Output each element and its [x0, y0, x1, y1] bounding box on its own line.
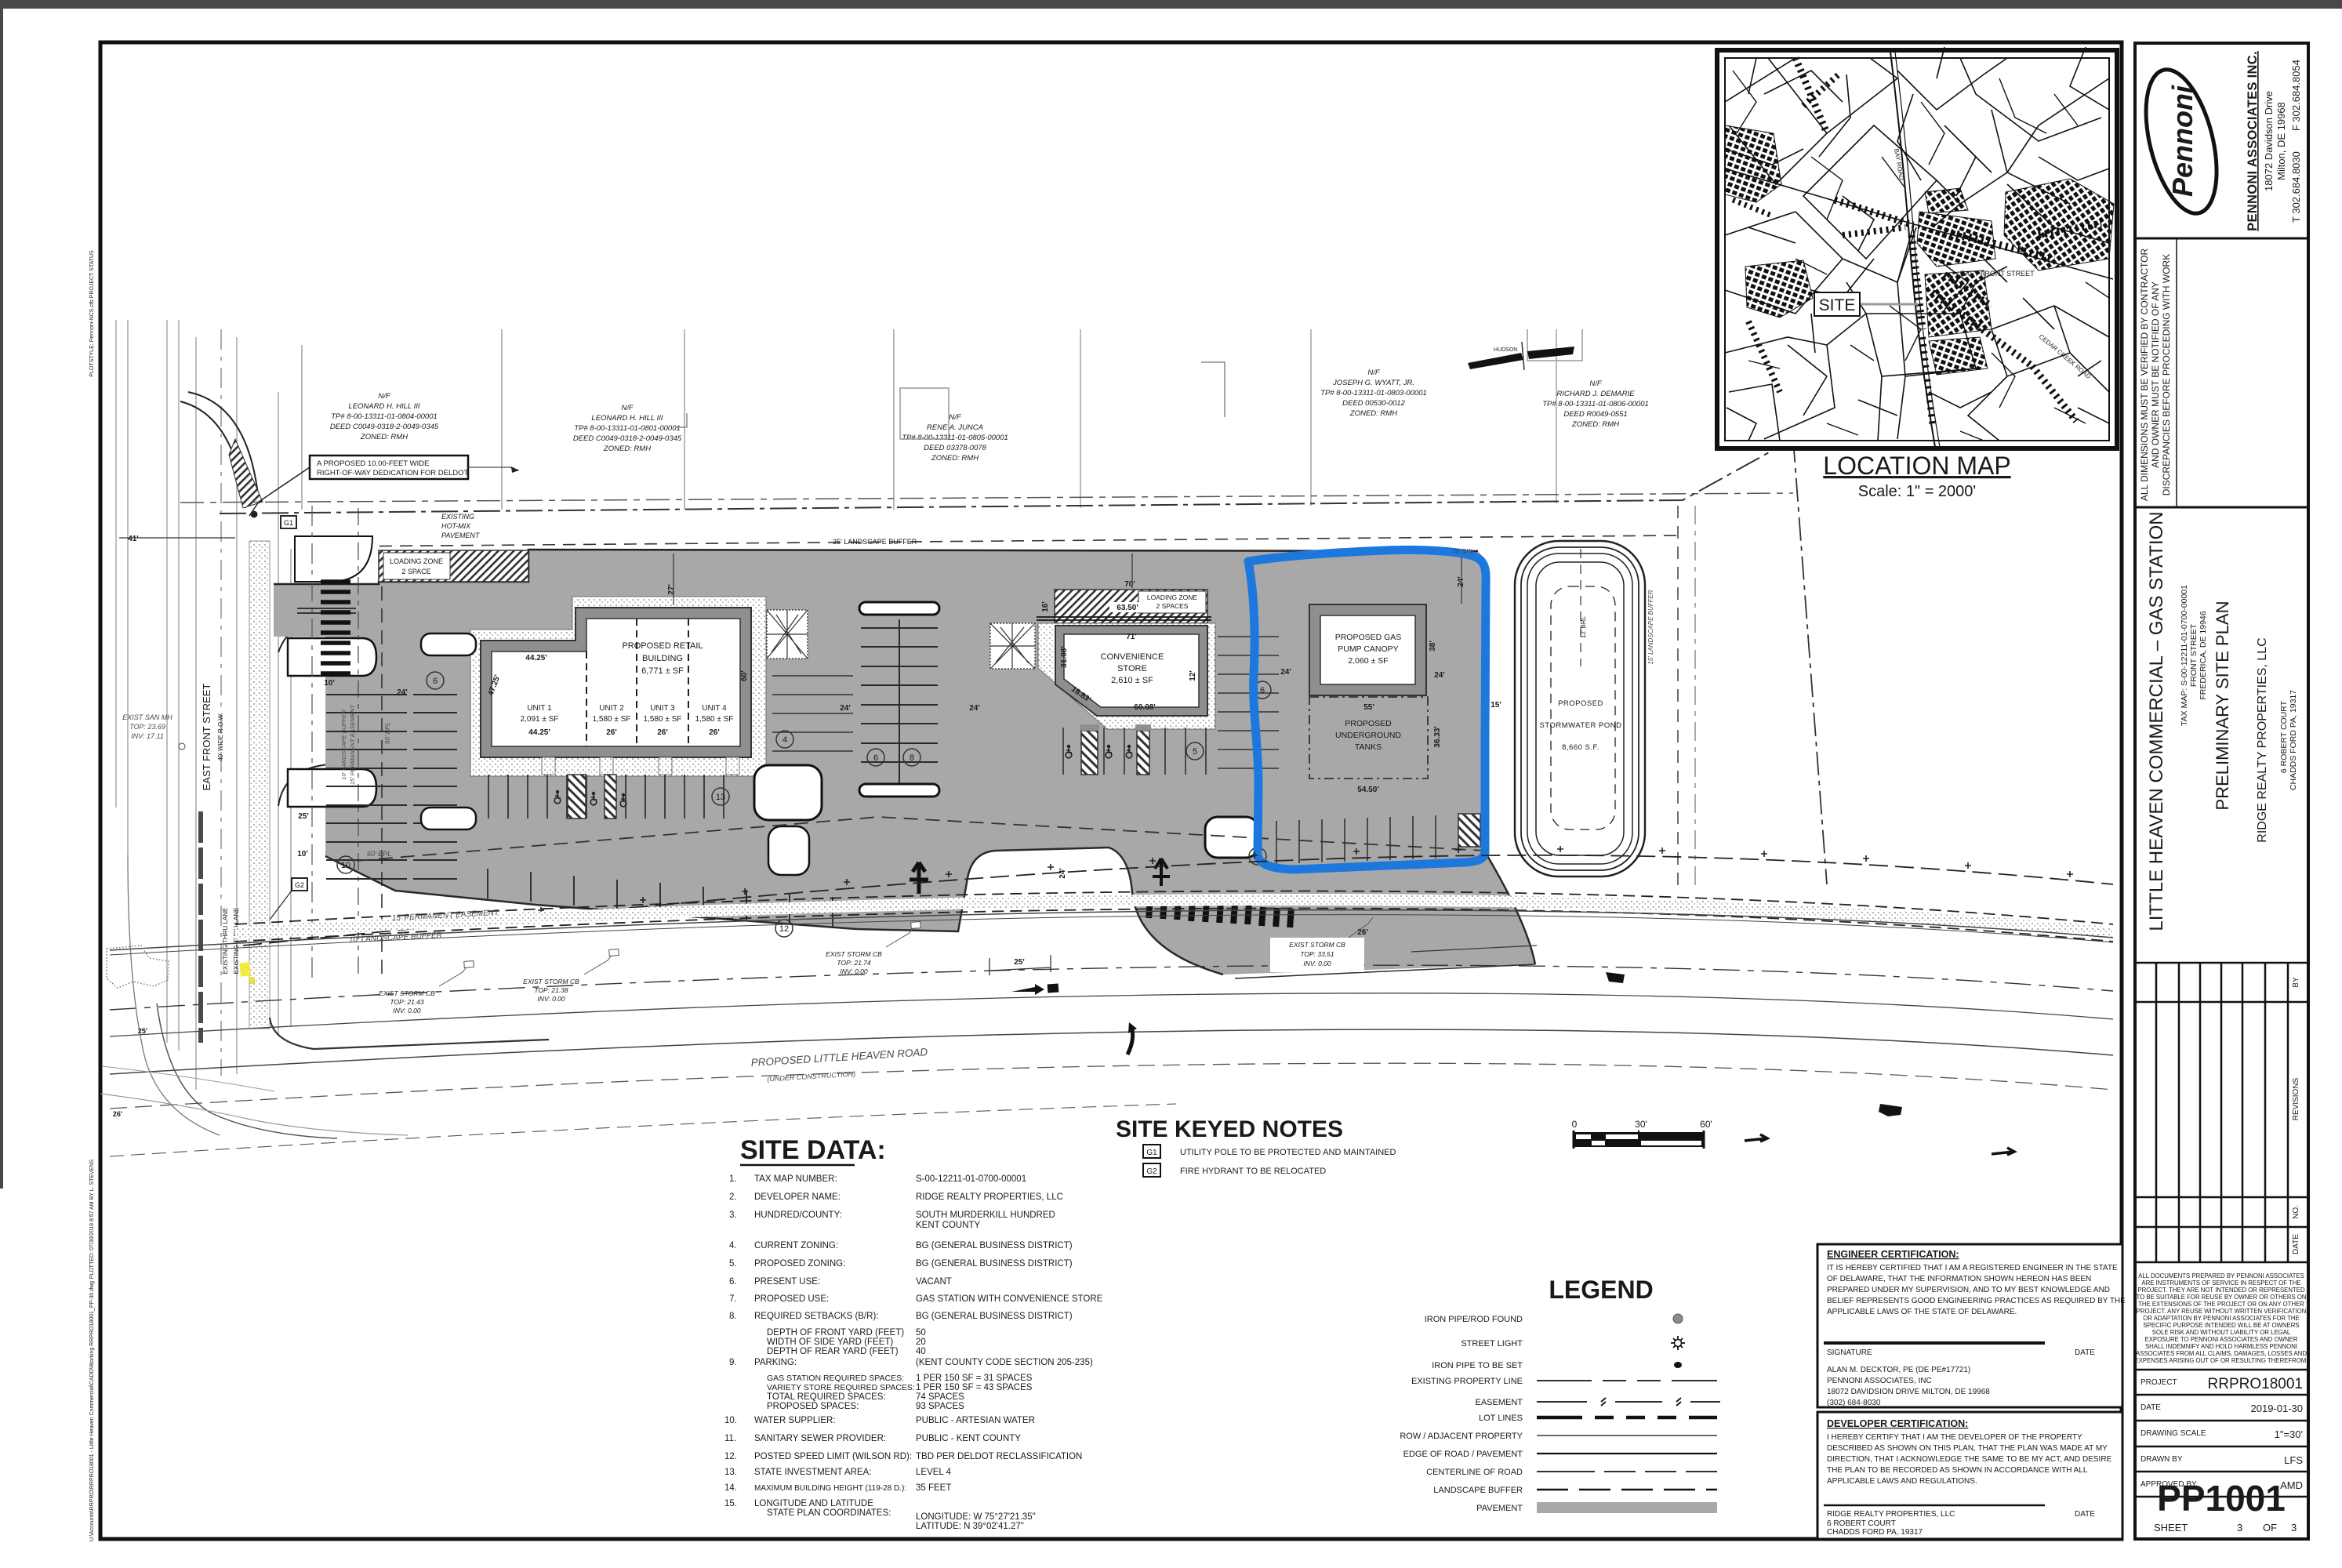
svg-text:EDGE OF ROAD / PAVEMENT: EDGE OF ROAD / PAVEMENT	[1403, 1450, 1523, 1459]
svg-text:UNIT 2: UNIT 2	[599, 704, 624, 713]
svg-text:APPLICABLE LAWS OF THE STATE O: APPLICABLE LAWS OF THE STATE OF DELAWARE…	[1827, 1308, 2017, 1316]
svg-text:SPECIFIC PURPOSE INTENDED WILL: SPECIFIC PURPOSE INTENDED WILL BE AT OWN…	[2143, 1322, 2299, 1329]
svg-text:2,060 ± SF: 2,060 ± SF	[1348, 656, 1388, 666]
svg-text:DIRECTION, THAT I ACKNOWLEDGE: DIRECTION, THAT I ACKNOWLEDGE THE SAME T…	[1827, 1455, 2112, 1464]
svg-text:FRONT STREET: FRONT STREET	[2189, 623, 2199, 687]
svg-text:25': 25'	[138, 1027, 147, 1035]
svg-text:SITE: SITE	[1819, 296, 1856, 314]
svg-text:RENE A. JUNCA: RENE A. JUNCA	[927, 423, 983, 432]
svg-text:DESCRIBED AS SHOWN ON THIS PLA: DESCRIBED AS SHOWN ON THIS PLAN, THAT TH…	[1827, 1444, 2108, 1453]
svg-text:PARKING:: PARKING:	[754, 1358, 797, 1367]
svg-text:36.33': 36.33'	[1433, 726, 1442, 747]
svg-text:LEONARD H. HILL III: LEONARD H. HILL III	[591, 414, 663, 423]
svg-text:DEED 00530-0012: DEED 00530-0012	[1342, 399, 1405, 408]
svg-text:EXIST STORM CB: EXIST STORM CB	[826, 950, 882, 958]
svg-text:20: 20	[916, 1338, 926, 1347]
svg-text:DEVELOPER NAME:: DEVELOPER NAME:	[754, 1192, 841, 1202]
svg-text:DATE: DATE	[2140, 1403, 2161, 1412]
svg-text:IRON PIPE TO BE SET: IRON PIPE TO BE SET	[1432, 1361, 1523, 1370]
svg-text:LOADING ZONE: LOADING ZONE	[390, 557, 443, 565]
svg-text:I HEREBY CERTIFY THAT I AM THE: I HEREBY CERTIFY THAT I AM THE DEVELOPER…	[1827, 1433, 2082, 1442]
svg-text:PUBLIC - KENT COUNTY: PUBLIC - KENT COUNTY	[916, 1434, 1021, 1443]
svg-text:3.: 3.	[729, 1210, 737, 1220]
svg-text:DISCREPANCIES BEFORE PROCEEDIN: DISCREPANCIES BEFORE PROCEEDING WITH WOR…	[2161, 254, 2172, 495]
svg-text:CENTERLINE OF ROAD: CENTERLINE OF ROAD	[1426, 1468, 1523, 1477]
svg-text:G1: G1	[284, 519, 293, 527]
svg-text:EXIST STORM CB: EXIST STORM CB	[1289, 941, 1345, 949]
svg-text:1.: 1.	[729, 1174, 737, 1184]
svg-text:KENT COUNTY: KENT COUNTY	[916, 1221, 981, 1230]
svg-text:TANKS: TANKS	[1355, 742, 1382, 752]
svg-text:ZONED: RMH: ZONED: RMH	[931, 454, 979, 463]
svg-text:50: 50	[916, 1328, 926, 1338]
svg-text:N/F: N/F	[1367, 368, 1381, 377]
svg-text:SANITARY SEWER PROVIDER:: SANITARY SEWER PROVIDER:	[754, 1434, 886, 1443]
svg-text:PROJECT: PROJECT	[2140, 1378, 2177, 1387]
svg-text:SHALL INDEMNIFY AND HOLD HARML: SHALL INDEMNIFY AND HOLD HARMLESS PENNON…	[2145, 1343, 2297, 1350]
svg-text:TP# 8-00-13311-01-0804-00001: TP# 8-00-13311-01-0804-00001	[331, 412, 438, 421]
svg-text:IT IS HEREBY CERTIFIED THAT I: IT IS HEREBY CERTIFIED THAT I AM A REGIS…	[1827, 1264, 2118, 1272]
svg-text:6: 6	[1260, 686, 1265, 695]
svg-text:7.: 7.	[729, 1294, 737, 1304]
svg-text:BY: BY	[2292, 977, 2300, 988]
svg-text:ALL DIMENSIONS MUST BE VERIFIE: ALL DIMENSIONS MUST BE VERIFIED BY CONTR…	[2139, 249, 2150, 502]
svg-text:EXIST STORM CB: EXIST STORM CB	[379, 989, 435, 997]
svg-text:LEVEL 4: LEVEL 4	[916, 1468, 952, 1477]
svg-text:RICHARD J. DEMARIE: RICHARD J. DEMARIE	[1556, 390, 1635, 398]
svg-text:44.25': 44.25'	[528, 728, 550, 737]
svg-text:30' BPL: 30' BPL	[1452, 548, 1474, 555]
svg-text:DEED 03378-0078: DEED 03378-0078	[924, 444, 986, 452]
svg-text:SHEET: SHEET	[2154, 1522, 2188, 1534]
svg-text:DATE: DATE	[2292, 1234, 2300, 1254]
svg-text:CURRENT ZONING:: CURRENT ZONING:	[754, 1241, 838, 1250]
svg-text:SIGNATURE: SIGNATURE	[1827, 1348, 1872, 1357]
svg-text:S-00-12211-01-0700-00001: S-00-12211-01-0700-00001	[916, 1174, 1026, 1184]
svg-text:LOT LINES: LOT LINES	[1479, 1414, 1523, 1423]
svg-text:GAS STATION WITH CONVENIENCE S: GAS STATION WITH CONVENIENCE STORE	[916, 1294, 1103, 1304]
svg-text:LOADING ZONE: LOADING ZONE	[1147, 593, 1198, 601]
svg-text:HUNDRED/COUNTY:: HUNDRED/COUNTY:	[754, 1210, 842, 1220]
svg-text:FREDERICA, DE 19946: FREDERICA, DE 19946	[2199, 611, 2208, 699]
svg-text:16': 16'	[1041, 601, 1050, 612]
svg-text:N/F: N/F	[621, 404, 634, 412]
svg-text:10': 10'	[324, 679, 335, 688]
svg-text:T 302.684.8030 F 302.684.80: T 302.684.8030 F 302.684.8054	[2290, 60, 2302, 223]
svg-text:AND OWNER MUST BE NOTIFIED OF: AND OWNER MUST BE NOTIFIED OF ANY	[2150, 281, 2161, 468]
svg-text:ASSOCIATES FROM ALL CLAIMS, DA: ASSOCIATES FROM ALL CLAIMS, DAMAGES, LOS…	[2136, 1350, 2307, 1357]
svg-text:2.: 2.	[729, 1192, 737, 1202]
svg-text:Milton, DE 19968: Milton, DE 19968	[2275, 102, 2287, 180]
svg-text:N/F: N/F	[1589, 379, 1603, 388]
svg-text:WIDTH OF SIDE YARD (FEET): WIDTH OF SIDE YARD (FEET)	[767, 1338, 893, 1347]
svg-text:PRELIMINARY SITE PLAN: PRELIMINARY SITE PLAN	[2213, 601, 2232, 811]
svg-text:POSTED SPEED LIMIT (WILSON RD): POSTED SPEED LIMIT (WILSON RD):	[754, 1452, 912, 1461]
svg-text:INV: 0.00: INV: 0.00	[1303, 960, 1331, 967]
svg-text:INV: 0.00: INV: 0.00	[537, 995, 565, 1003]
svg-text:5: 5	[1193, 747, 1197, 757]
svg-text:15': 15'	[1491, 701, 1501, 710]
svg-text:UNDERGROUND: UNDERGROUND	[1335, 731, 1401, 740]
svg-text:PROPOSED: PROPOSED	[1558, 699, 1603, 708]
svg-text:26': 26'	[1357, 928, 1368, 937]
svg-text:RIDGE REALTY PROPERTIES, LLC: RIDGE REALTY PROPERTIES, LLC	[2256, 637, 2269, 842]
svg-text:PAVEMENT: PAVEMENT	[441, 532, 481, 539]
svg-text:PROPOSED: PROPOSED	[1345, 719, 1392, 728]
svg-text:CHADDS FORD PA, 19317: CHADDS FORD PA, 19317	[2289, 690, 2298, 790]
svg-text:35' LANDSCAPE BUFFER: 35' LANDSCAPE BUFFER	[833, 538, 917, 546]
svg-text:ZONED: RMH: ZONED: RMH	[1349, 409, 1397, 418]
svg-text:REQUIRED SETBACKS (B/R):: REQUIRED SETBACKS (B/R):	[754, 1312, 878, 1321]
svg-text:RRPRO18001: RRPRO18001	[2208, 1376, 2303, 1392]
svg-text:LONGITUDE: W 75°27'21.35": LONGITUDE: W 75°27'21.35"	[916, 1512, 1036, 1522]
svg-text:PAVEMENT: PAVEMENT	[1476, 1504, 1523, 1513]
svg-text:60.08': 60.08'	[1134, 703, 1155, 712]
svg-text:UTILITY POLE TO BE PROTECTED A: UTILITY POLE TO BE PROTECTED AND MAINTAI…	[1180, 1148, 1396, 1157]
svg-text:40: 40	[916, 1347, 926, 1356]
svg-text:STREET LIGHT: STREET LIGHT	[1461, 1339, 1523, 1348]
svg-text:PUMP CANOPY: PUMP CANOPY	[1338, 644, 1398, 654]
svg-text:THE EXTENSIONS OF THE PROJECT: THE EXTENSIONS OF THE PROJECT OR ON ANY …	[2138, 1301, 2304, 1308]
svg-text:ENGINEER CERTIFICATION:: ENGINEER CERTIFICATION:	[1827, 1249, 1959, 1260]
svg-text:1,580 ± SF: 1,580 ± SF	[695, 715, 734, 724]
svg-text:VARIETY STORE REQUIRED SPACES:: VARIETY STORE REQUIRED SPACES:	[767, 1383, 915, 1392]
svg-text:TBD PER DELDOT RECLASSIFICATIO: TBD PER DELDOT RECLASSIFICATION	[916, 1452, 1082, 1461]
svg-text:CONVENIENCE: CONVENIENCE	[1101, 652, 1164, 662]
svg-text:DEVELOPER CERTIFICATION:: DEVELOPER CERTIFICATION:	[1827, 1418, 1968, 1429]
svg-text:EXISTING THRU LANE: EXISTING THRU LANE	[222, 908, 229, 975]
svg-text:71': 71'	[1126, 633, 1137, 641]
svg-text:18072 DAVIDSION DRIVE MILTON,: 18072 DAVIDSION DRIVE MILTON, DE 19968	[1827, 1388, 1990, 1396]
svg-text:60' BPL: 60' BPL	[384, 722, 391, 744]
svg-text:LEONARD H. HILL III: LEONARD H. HILL III	[348, 402, 420, 411]
svg-text:6.: 6.	[729, 1277, 737, 1287]
svg-text:ZONED: RMH: ZONED: RMH	[603, 445, 651, 453]
svg-text:LFS: LFS	[2284, 1454, 2303, 1466]
svg-text:13: 13	[716, 793, 725, 802]
svg-text:LATITUDE: N 39°02'41.27": LATITUDE: N 39°02'41.27"	[916, 1522, 1024, 1531]
svg-text:54.50': 54.50'	[1357, 786, 1378, 794]
svg-text:EASEMENT: EASEMENT	[1475, 1398, 1523, 1407]
svg-text:RIDGE REALTY PROPERTIES, LLC: RIDGE REALTY PROPERTIES, LLC	[1827, 1510, 1955, 1519]
svg-text:44.25': 44.25'	[525, 654, 546, 662]
svg-text:SITE DATA:: SITE DATA:	[740, 1135, 886, 1165]
svg-text:EXISTING: EXISTING	[441, 513, 474, 521]
svg-text:70': 70'	[1124, 580, 1135, 589]
svg-text:CHADDS FORD PA, 19317: CHADDS FORD PA, 19317	[1827, 1528, 1923, 1537]
svg-text:74 SPACES: 74 SPACES	[916, 1392, 964, 1402]
svg-text:8: 8	[910, 753, 914, 763]
svg-text:UNIT 3: UNIT 3	[650, 704, 675, 713]
svg-text:STORE: STORE	[1117, 664, 1147, 673]
svg-text:Pennoni: Pennoni	[2166, 85, 2199, 197]
svg-text:RIDGE REALTY PROPERTIES, LLC: RIDGE REALTY PROPERTIES, LLC	[916, 1192, 1063, 1202]
svg-text:LONGITUDE AND LATITUDE: LONGITUDE AND LATITUDE	[754, 1499, 873, 1508]
svg-text:IRON PIPE/ROD FOUND: IRON PIPE/ROD FOUND	[1425, 1315, 1523, 1324]
svg-text:TP# 8-00-13311-01-0805-00001: TP# 8-00-13311-01-0805-00001	[902, 434, 1008, 442]
svg-text:10' LANDSCAPE BUFFER: 10' LANDSCAPE BUFFER	[340, 710, 347, 780]
svg-text:ARE INSTRUMENTS OF SERVICE IN: ARE INSTRUMENTS OF SERVICE IN RESPECT OF…	[2141, 1279, 2300, 1287]
svg-text:4: 4	[782, 735, 787, 745]
svg-text:26': 26'	[657, 728, 668, 737]
svg-text:15' LANDSCAPE BUFFER: 15' LANDSCAPE BUFFER	[1647, 590, 1654, 665]
svg-text:8.: 8.	[729, 1312, 737, 1321]
svg-text:EXIST STORM CB: EXIST STORM CB	[523, 978, 579, 985]
svg-text:THE PLAN TO BE RECORDED AS SHO: THE PLAN TO BE RECORDED AS SHOWN IN ACCO…	[1827, 1466, 2088, 1475]
svg-text:2 SPACES: 2 SPACES	[1156, 602, 1189, 610]
svg-text:EXIST SAN MH: EXIST SAN MH	[122, 713, 172, 721]
svg-text:OF: OF	[2263, 1522, 2277, 1534]
svg-text:OR ADAPTATION BY PENNONI ASSOC: OR ADAPTATION BY PENNONI ASSOCIATES FOR …	[2143, 1315, 2299, 1322]
svg-text:12: 12	[779, 924, 789, 934]
svg-text:FIRE HYDRANT TO BE RELOCATED: FIRE HYDRANT TO BE RELOCATED	[1180, 1167, 1326, 1176]
svg-text:SOLE RISK AND WITHOUT LIABILIT: SOLE RISK AND WITHOUT LIABILITY OR LEGAL	[2152, 1329, 2291, 1336]
svg-text:PRESENT USE:: PRESENT USE:	[754, 1277, 820, 1287]
svg-text:24': 24'	[1434, 671, 1445, 680]
svg-text:26': 26'	[113, 1110, 122, 1118]
svg-text:(KENT COUNTY CODE SECTION 205-: (KENT COUNTY CODE SECTION 205-235)	[916, 1358, 1093, 1367]
svg-text:1"=30': 1"=30'	[2275, 1428, 2303, 1440]
svg-text:25': 25'	[1014, 958, 1025, 967]
svg-text:INV: 17.11: INV: 17.11	[131, 732, 164, 740]
svg-text:PROPOSED ZONING:: PROPOSED ZONING:	[754, 1259, 845, 1269]
svg-text:1 PER 150 SF = 43 SPACES: 1 PER 150 SF = 43 SPACES	[916, 1383, 1033, 1392]
svg-text:40' WIDE R.O.W.: 40' WIDE R.O.W.	[217, 713, 224, 761]
svg-text:PENNONI ASSOCIATES INC.: PENNONI ASSOCIATES INC.	[2246, 51, 2260, 231]
svg-text:INV: 0.00: INV: 0.00	[393, 1007, 421, 1014]
svg-text:PREPARED UNDER MY SUPERVISION,: PREPARED UNDER MY SUPERVISION, AND TO MY…	[1827, 1286, 2110, 1294]
svg-text:DEED C0049-0318-2-0049-0345: DEED C0049-0318-2-0049-0345	[573, 434, 682, 443]
svg-text:LITTLE HEAVEN COMMERCIAL – GAS: LITTLE HEAVEN COMMERCIAL – GAS STATION	[2146, 511, 2167, 931]
svg-text:24': 24'	[1280, 668, 1291, 677]
svg-text:12': 12'	[1189, 670, 1197, 681]
svg-text:LANDSCAPE BUFFER: LANDSCAPE BUFFER	[1433, 1486, 1523, 1495]
svg-text:G2: G2	[1146, 1167, 1157, 1176]
svg-text:BUILDING: BUILDING	[642, 654, 683, 663]
svg-text:ZONED: RMH: ZONED: RMH	[360, 433, 408, 441]
svg-text:14.: 14.	[724, 1483, 737, 1493]
svg-text:60': 60'	[740, 670, 749, 681]
svg-text:0: 0	[1572, 1119, 1578, 1130]
svg-text:DATE: DATE	[2075, 1510, 2095, 1519]
svg-text:JOSEPH G. WYATT, JR.: JOSEPH G. WYATT, JR.	[1332, 379, 1414, 387]
svg-text:HUDSON: HUDSON	[1494, 347, 1517, 353]
svg-text:TOTAL REQUIRED SPACES:: TOTAL REQUIRED SPACES:	[767, 1392, 886, 1402]
svg-text:HOT-MIX: HOT-MIX	[441, 522, 471, 530]
svg-text:TOP: 23.69: TOP: 23.69	[129, 723, 165, 731]
svg-text:93 SPACES: 93 SPACES	[916, 1402, 964, 1411]
svg-text:BELIEF REPRESENTS GOOD ENGINEE: BELIEF REPRESENTS GOOD ENGINEERING PRACT…	[1827, 1297, 2126, 1305]
svg-text:DEED C0049-0318-2-0049-0345: DEED C0049-0318-2-0049-0345	[330, 423, 439, 431]
svg-text:PROJECT. THEY ARE NOT INTENDE: PROJECT. THEY ARE NOT INTENDED OR REPRES…	[2137, 1287, 2305, 1294]
svg-text:ZONED: RMH: ZONED: RMH	[1571, 420, 1619, 429]
svg-text:1 PER 150 SF = 31 SPACES: 1 PER 150 SF = 31 SPACES	[916, 1374, 1033, 1383]
svg-text:60': 60'	[1700, 1119, 1712, 1130]
svg-text:EXISTING PROPERTY LINE: EXISTING PROPERTY LINE	[1411, 1377, 1523, 1386]
svg-text:ROW / ADJACENT PROPERTY: ROW / ADJACENT PROPERTY	[1400, 1432, 1523, 1441]
svg-text:DRAWN BY: DRAWN BY	[2140, 1455, 2183, 1464]
svg-text:TP# 8-00-13311-01-0801-00001: TP# 8-00-13311-01-0801-00001	[574, 424, 681, 433]
svg-text:26': 26'	[606, 728, 617, 737]
svg-text:5.: 5.	[729, 1259, 737, 1269]
svg-text:U:\Accounts\RRPRO\RRPRO18001 -: U:\Accounts\RRPRO\RRPRO18001 - Little He…	[89, 1281, 95, 1541]
svg-text:PP1001: PP1001	[2157, 1478, 2286, 1519]
svg-text:NO.: NO.	[2292, 1205, 2300, 1219]
svg-text:A PROPOSED 10.00-FEET WIDE: A PROPOSED 10.00-FEET WIDE	[317, 459, 429, 468]
svg-text:10: 10	[341, 861, 350, 870]
svg-text:WATER SUPPLIER:: WATER SUPPLIER:	[754, 1416, 836, 1425]
svg-text:PROPOSED GAS: PROPOSED GAS	[1335, 633, 1402, 642]
svg-text:STATE INVESTMENT AREA:: STATE INVESTMENT AREA:	[754, 1468, 872, 1477]
svg-text:(302) 684-8030: (302) 684-8030	[1827, 1399, 1881, 1407]
svg-text:6,771 ± SF: 6,771 ± SF	[641, 666, 684, 676]
svg-text:SOUTH MURDERKILL HUNDRED: SOUTH MURDERKILL HUNDRED	[916, 1210, 1055, 1220]
svg-text:2,610 ± SF: 2,610 ± SF	[1111, 676, 1153, 685]
svg-text:BG (GENERAL BUSINESS DISTRICT): BG (GENERAL BUSINESS DISTRICT)	[916, 1241, 1073, 1250]
svg-text:G2: G2	[295, 881, 304, 889]
svg-text:27': 27'	[667, 584, 676, 595]
svg-text:60' BPL: 60' BPL	[367, 850, 391, 858]
svg-text:2019-01-30: 2019-01-30	[2251, 1403, 2304, 1414]
svg-text:DATE: DATE	[2075, 1348, 2095, 1357]
svg-text:UNIT 1: UNIT 1	[527, 704, 552, 713]
svg-text:TOP: 21.43: TOP: 21.43	[390, 998, 424, 1006]
svg-text:10': 10'	[297, 850, 308, 858]
svg-text:6 ROBERT COURT: 6 ROBERT COURT	[2279, 700, 2289, 773]
svg-text:PROJECT. ANY REUSE WITHOUT WR: PROJECT. ANY REUSE WITHOUT WRITTEN VERIF…	[2137, 1308, 2307, 1315]
svg-text:DEPTH OF REAR YARD (FEET): DEPTH OF REAR YARD (FEET)	[767, 1347, 899, 1356]
svg-text:TAX MAP: S-00-12211-01-0700-00: TAX MAP: S-00-12211-01-0700-00001	[2180, 585, 2189, 726]
svg-text:TOP: 21.38: TOP: 21.38	[534, 986, 568, 994]
svg-text:TP# 8-00-13311-01-0803-00001: TP# 8-00-13311-01-0803-00001	[1320, 389, 1427, 397]
svg-text:30': 30'	[1635, 1119, 1647, 1130]
svg-text:ALL DOCUMENTS PREPARED BY PENN: ALL DOCUMENTS PREPARED BY PENNONI ASSOCI…	[2138, 1272, 2304, 1279]
svg-text:18072 Davidson Drive: 18072 Davidson Drive	[2263, 91, 2275, 191]
svg-text:63.50': 63.50'	[1117, 604, 1138, 612]
svg-text:PLOTTED: 07/30/2019 8:57 AM BY: PLOTTED: 07/30/2019 8:57 AM BY L. STEVEN…	[89, 1159, 95, 1279]
svg-text:15.: 15.	[724, 1499, 737, 1508]
svg-text:TAX MAP NUMBER:: TAX MAP NUMBER:	[754, 1174, 837, 1184]
svg-text:11.: 11.	[724, 1434, 736, 1443]
svg-text:3: 3	[2237, 1522, 2242, 1534]
svg-text:PROPOSED SPACES:: PROPOSED SPACES:	[767, 1402, 859, 1411]
svg-text:2,091 ± SF: 2,091 ± SF	[521, 715, 559, 724]
svg-text:6 ROBERT COURT: 6 ROBERT COURT	[1827, 1519, 1896, 1528]
svg-text:DEED R0049-0551: DEED R0049-0551	[1563, 410, 1627, 419]
svg-text:9.: 9.	[729, 1358, 737, 1367]
svg-text:1,580 ± SF: 1,580 ± SF	[644, 715, 682, 724]
svg-text:BG (GENERAL BUSINESS DISTRICT): BG (GENERAL BUSINESS DISTRICT)	[916, 1259, 1073, 1269]
svg-text:Scale: 1" = 2000': Scale: 1" = 2000'	[1858, 483, 1976, 500]
svg-text:DEPTH OF FRONT YARD (FEET): DEPTH OF FRONT YARD (FEET)	[767, 1328, 904, 1338]
svg-text:41': 41'	[128, 535, 139, 543]
svg-text:3: 3	[2291, 1522, 2297, 1534]
svg-text:GAS STATION REQUIRED SPACES:: GAS STATION REQUIRED SPACES:	[767, 1374, 904, 1383]
svg-text:OF DELAWARE, THAT THE INFORMAT: OF DELAWARE, THAT THE INFORMATION SHOWN …	[1827, 1275, 2091, 1283]
svg-text:EXPENSES ARISING OUT OF OR RES: EXPENSES ARISING OUT OF OR RESULTING THE…	[2135, 1357, 2308, 1364]
svg-text:31.08': 31.08'	[1060, 646, 1069, 667]
svg-text:G1: G1	[1146, 1149, 1157, 1157]
svg-text:PLOTSTYLE: Pennoni-NCS.ctb: PLOTSTYLE: Pennoni-NCS.ctb PROJECT STATU…	[89, 250, 95, 377]
svg-text:EAST FRONT STREET: EAST FRONT STREET	[201, 684, 212, 791]
svg-text:APPLICABLE LAWS AND REGULATION: APPLICABLE LAWS AND REGULATIONS.	[1827, 1477, 1977, 1486]
svg-text:25': 25'	[298, 812, 309, 821]
svg-text:N/F: N/F	[378, 392, 391, 401]
svg-text:DRAWING SCALE: DRAWING SCALE	[2140, 1429, 2206, 1438]
svg-text:PENNONI ASSOCIATES, INC: PENNONI ASSOCIATES, INC	[1827, 1377, 1932, 1385]
svg-text:BG (GENERAL BUSINESS DISTRICT): BG (GENERAL BUSINESS DISTRICT)	[916, 1312, 1073, 1321]
svg-text:6: 6	[873, 753, 878, 763]
svg-text:EAST FRONT STREET: EAST FRONT STREET	[1960, 270, 2035, 278]
svg-text:REVISIONS: REVISIONS	[2292, 1077, 2300, 1120]
svg-text:6: 6	[433, 677, 438, 686]
svg-text:TOP: 21.74: TOP: 21.74	[837, 959, 871, 967]
svg-text:4.: 4.	[729, 1241, 737, 1250]
svg-text:35 FEET: 35 FEET	[916, 1483, 951, 1493]
svg-text:13.: 13.	[724, 1468, 737, 1477]
svg-text:10.: 10.	[724, 1416, 737, 1425]
svg-text:TO BE SUITABLE FOR REUSE BY OW: TO BE SUITABLE FOR REUSE BY OWNER OR OTH…	[2136, 1294, 2306, 1301]
svg-text:24': 24'	[397, 688, 408, 697]
svg-text:TOP: 33.51: TOP: 33.51	[1300, 950, 1334, 958]
svg-text:38': 38'	[1429, 641, 1437, 652]
svg-text:2 SPACE: 2 SPACE	[401, 568, 430, 575]
svg-text:PUBLIC - ARTESIAN WATER: PUBLIC - ARTESIAN WATER	[916, 1416, 1035, 1425]
svg-text:SITE KEYED NOTES: SITE KEYED NOTES	[1116, 1116, 1343, 1142]
svg-text:8,660 S.F.: 8,660 S.F.	[1562, 743, 1599, 752]
svg-text:STORMWATER POND: STORMWATER POND	[1540, 721, 1622, 730]
svg-text:24': 24'	[1058, 868, 1067, 879]
svg-text:PROPOSED RETAIL: PROPOSED RETAIL	[622, 641, 703, 651]
svg-text:26': 26'	[709, 728, 720, 737]
svg-text:EXPOSURE TO PENNONI ASSOCIATES: EXPOSURE TO PENNONI ASSOCIATES AND OWNER	[2145, 1336, 2298, 1343]
svg-text:24': 24'	[969, 704, 980, 713]
svg-text:55': 55'	[1363, 703, 1374, 712]
svg-text:MAXIMUM BUILDING HEIGHT (119-2: MAXIMUM BUILDING HEIGHT (119-28 D.):	[754, 1484, 906, 1493]
svg-text:LOCATION MAP: LOCATION MAP	[1823, 452, 2010, 480]
svg-text:STATE PLAN COORDINATES:: STATE PLAN COORDINATES:	[767, 1508, 891, 1518]
svg-text:PROPOSED USE:: PROPOSED USE:	[754, 1294, 829, 1304]
svg-text:12' BRL: 12' BRL	[1580, 615, 1587, 638]
svg-text:INV: 0.00: INV: 0.00	[840, 967, 868, 975]
svg-text:UNIT 4: UNIT 4	[702, 704, 727, 713]
svg-text:12.: 12.	[724, 1452, 737, 1461]
svg-text:N/F: N/F	[949, 413, 962, 422]
svg-text:VACANT: VACANT	[916, 1277, 952, 1287]
svg-text:TP# 8-00-13311-01-0806-00001: TP# 8-00-13311-01-0806-00001	[1542, 400, 1649, 408]
svg-text:RIGHT-OF-WAY DEDICATION FOR DE: RIGHT-OF-WAY DEDICATION FOR DELDOT	[317, 469, 469, 477]
svg-text:24': 24'	[840, 704, 851, 713]
svg-text:15' PERMANENT EASEMENT: 15' PERMANENT EASEMENT	[349, 703, 356, 785]
svg-text:LEGEND: LEGEND	[1549, 1276, 1653, 1304]
svg-text:1,580 ± SF: 1,580 ± SF	[593, 715, 631, 724]
svg-text:ALAN M. DECKTOR, PE (DE PE#: ALAN M. DECKTOR, PE (DE PE#17721)	[1827, 1366, 1970, 1374]
